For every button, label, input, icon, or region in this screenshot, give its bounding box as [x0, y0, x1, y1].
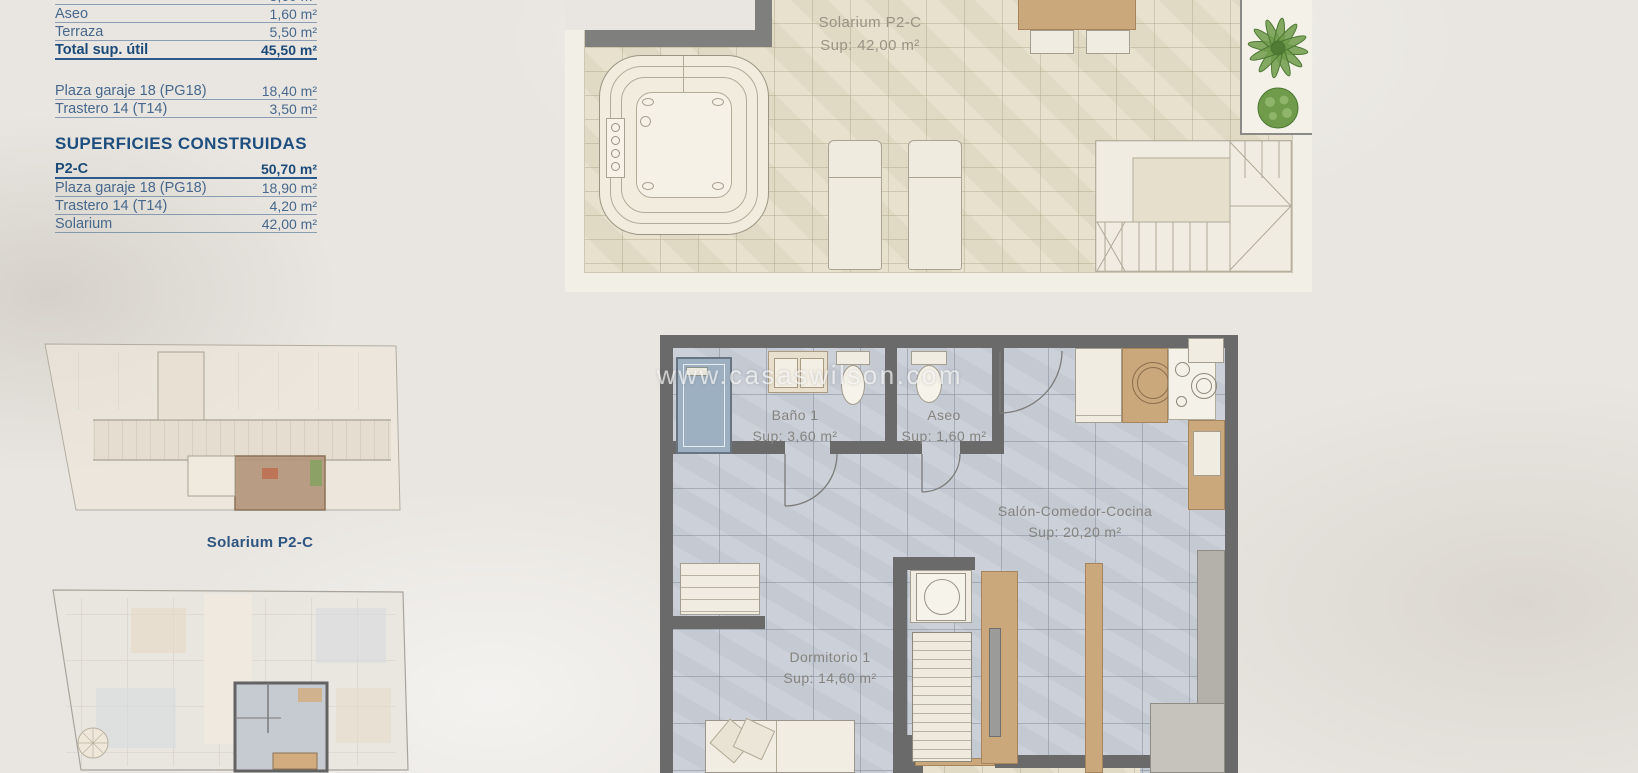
row-value: 18,90 m²	[262, 180, 317, 196]
table-row: Terraza 5,50 m²	[55, 23, 317, 41]
wall	[585, 30, 772, 47]
table-row: Trastero 14 (T14) 3,50 m²	[55, 100, 317, 118]
jacuzzi-jet	[642, 98, 654, 106]
surface-summary-table: Baño 1 3,60 m² Aseo 1,60 m² Terraza 5,50…	[55, 0, 317, 233]
plan-cutout	[565, 0, 772, 30]
table-row-total: Total sup. útil 45,50 m²	[55, 41, 317, 60]
table-gap	[55, 60, 317, 82]
brochure-page: Baño 1 3,60 m² Aseo 1,60 m² Terraza 5,50…	[0, 0, 1638, 773]
solarium-title: Solarium P2-C	[770, 12, 970, 35]
built-surfaces-heading: SUPERFICIES CONSTRUIDAS	[55, 134, 317, 154]
solarium-label: Solarium P2-C Sup: 42,00 m²	[770, 12, 970, 57]
row-value: 18,40 m²	[262, 83, 317, 99]
row-label: Terraza	[55, 24, 103, 40]
row-label: Trastero 14 (T14)	[55, 101, 167, 117]
table-row: Solarium 42,00 m²	[55, 215, 317, 233]
jet-control	[611, 136, 620, 145]
jacuzzi-control-panel	[606, 118, 625, 178]
watermark: www.casaswilson.com	[640, 360, 980, 391]
jacuzzi-jet	[712, 182, 724, 190]
building-overview-floor	[36, 568, 421, 773]
row-value: 1,60 m²	[270, 6, 317, 22]
row-value: 5,50 m²	[270, 24, 317, 40]
row-label: Trastero 14 (T14)	[55, 198, 167, 214]
chair	[1086, 30, 1130, 54]
row-value: 4,20 m²	[270, 198, 317, 214]
jacuzzi-jet	[642, 182, 654, 190]
solarium-area: Sup: 42,00 m²	[770, 35, 970, 58]
outdoor-table	[1018, 0, 1136, 30]
table-row: Plaza garaje 18 (PG18) 18,90 m²	[55, 179, 317, 197]
table-row: Aseo 1,60 m²	[55, 5, 317, 23]
building-overview-solarium	[38, 328, 403, 513]
sun-lounger	[828, 140, 882, 270]
solarium-floor-plan: Solarium P2-C Sup: 42,00 m²	[565, 0, 1312, 292]
jet-control	[611, 162, 620, 171]
row-label: P2-C	[55, 161, 88, 177]
plant-icon	[1242, 0, 1312, 133]
staircase	[1095, 140, 1292, 272]
lounger-fold	[829, 177, 881, 178]
sun-lounger	[908, 140, 962, 270]
jacuzzi	[599, 55, 769, 235]
chair	[1030, 30, 1074, 54]
row-label: Solarium	[55, 216, 112, 232]
planter-bed	[1240, 0, 1312, 135]
row-label: Aseo	[55, 6, 88, 22]
jet-control	[611, 149, 620, 158]
row-value: 3,60 m²	[270, 0, 317, 4]
overview-caption: Solarium P2-C	[150, 534, 370, 551]
row-value: 42,00 m²	[262, 216, 317, 232]
jet-control	[611, 123, 620, 132]
row-value: 50,70 m²	[261, 161, 317, 177]
row-value: 3,50 m²	[270, 101, 317, 117]
lounger-fold	[909, 177, 961, 178]
jacuzzi-jet	[712, 98, 724, 106]
row-label: Plaza garaje 18 (PG18)	[55, 180, 207, 196]
jacuzzi-jet	[640, 116, 651, 127]
door-swings	[660, 335, 1238, 773]
jacuzzi-seam	[683, 56, 684, 92]
row-label: Baño 1	[55, 0, 101, 4]
table-row: Plaza garaje 18 (PG18) 18,40 m²	[55, 82, 317, 100]
apartment-floor-plan: Baño 1 Sup: 3,60 m² Aseo Sup: 1,60 m² Sa…	[660, 335, 1238, 773]
row-value: 45,50 m²	[261, 42, 317, 58]
row-label: Plaza garaje 18 (PG18)	[55, 83, 207, 99]
table-row: Trastero 14 (T14) 4,20 m²	[55, 197, 317, 215]
table-row-unit: P2-C 50,70 m²	[55, 160, 317, 179]
row-label: Total sup. útil	[55, 42, 148, 58]
